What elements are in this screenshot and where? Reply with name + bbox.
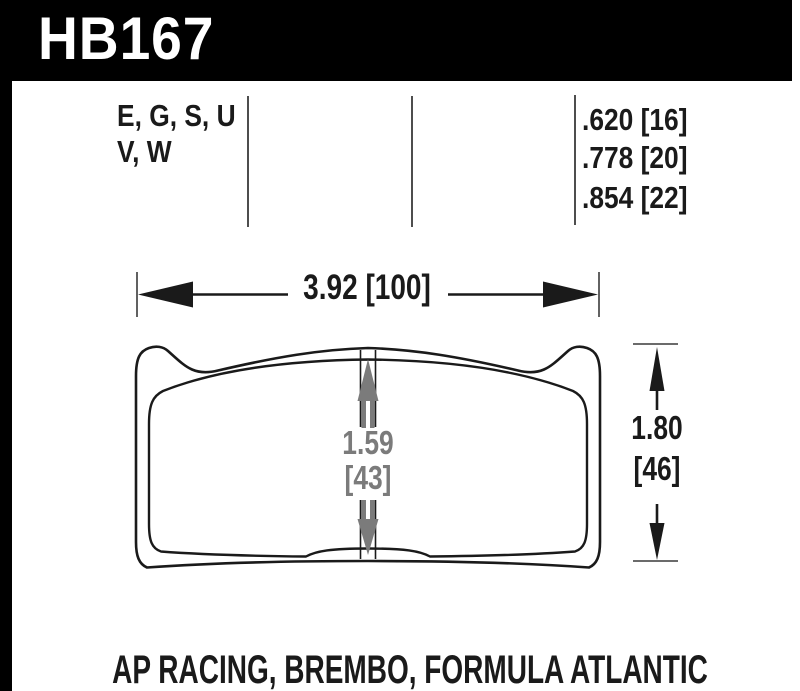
overall-height-down-arrowhead xyxy=(650,523,665,560)
applications-label: AP RACING, BREMBO, FORMULA ATLANTIC xyxy=(112,650,708,690)
pad-height-down-arrow-shaft-right xyxy=(370,500,375,522)
diagram-linework xyxy=(0,0,800,691)
pad-height-down-arrow-shaft-left xyxy=(362,500,367,522)
pad-height-mm-label: [43] xyxy=(345,461,392,494)
width-dimension-label: 3.92 [100] xyxy=(303,270,431,305)
width-dim-arrowhead-left xyxy=(138,282,193,308)
overall-height-mm-label: [46] xyxy=(634,452,681,485)
overall-height-inches-label: 1.80 xyxy=(631,411,682,444)
overall-height-up-arrowhead xyxy=(650,347,665,391)
brake-pad-spec-sheet: HB167 E, G, S, U V, W .620 [16] .778 [20… xyxy=(0,0,800,691)
width-dim-arrowhead-right xyxy=(543,282,598,308)
pad-height-inches-label: 1.59 xyxy=(342,426,393,459)
